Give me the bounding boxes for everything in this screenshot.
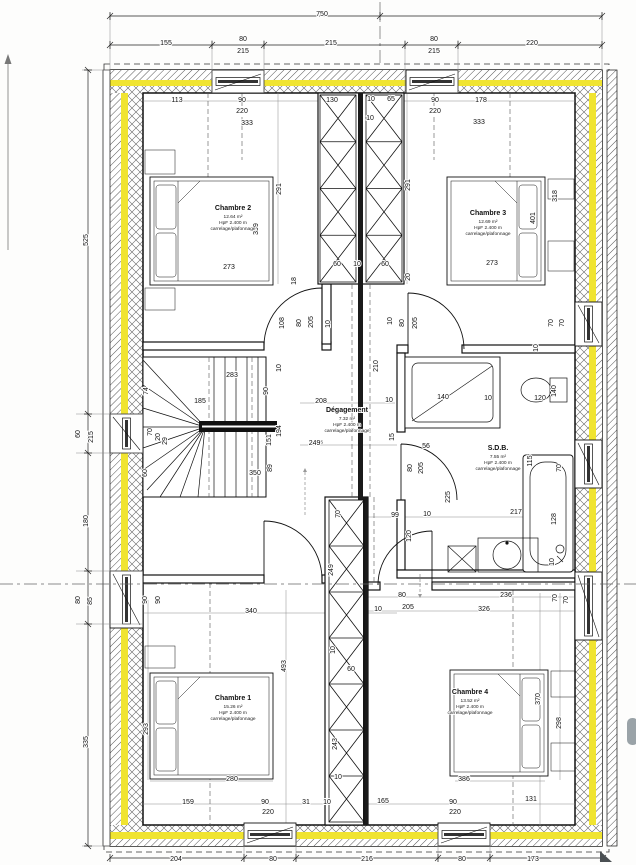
dimension-label: 10 xyxy=(276,364,283,372)
dimension-label: 205 xyxy=(308,316,315,328)
dimension-label: 56 xyxy=(422,443,430,450)
dimension-label: 220 xyxy=(449,809,461,816)
dimension-label: 31 xyxy=(302,799,310,806)
dimension-label: 326 xyxy=(478,606,490,613)
dimension-label: 140 xyxy=(437,394,449,401)
dimension-label: 10 xyxy=(374,606,382,613)
dimension-label: 220 xyxy=(262,809,274,816)
scroll-tab-artifact[interactable] xyxy=(627,718,636,745)
room-finish: carrelage/plafonnage xyxy=(210,226,255,232)
dimension-label: 60 xyxy=(75,430,82,438)
dimension-label: 10 xyxy=(330,646,337,654)
room-name: Chambre 2 xyxy=(215,205,251,212)
room-name: Chambre 4 xyxy=(452,689,488,696)
dimension-label: 60 xyxy=(347,666,355,673)
dimension-label: 80 xyxy=(398,592,406,599)
dimension-label: 90 xyxy=(155,596,162,604)
dimension-label: 210 xyxy=(373,360,380,372)
dimension-label: 80 xyxy=(407,464,414,472)
dimension-label: 131 xyxy=(525,796,537,803)
dimension-label: 273 xyxy=(223,264,235,271)
window xyxy=(110,414,143,453)
dimension-label: 10 xyxy=(385,397,393,404)
room-name: Chambre 3 xyxy=(470,210,506,217)
dimension-label: 128 xyxy=(551,513,558,525)
dimension-label: 18 xyxy=(291,277,298,285)
window xyxy=(575,302,602,346)
dimension-label: 215 xyxy=(237,48,249,55)
dimension-label: 80 xyxy=(239,36,247,43)
room-finish: carrelage/plafonnage xyxy=(210,716,255,722)
dimension-label: 10 xyxy=(367,96,375,103)
dimension-label: 60 xyxy=(381,261,389,268)
dimension-label: 291 xyxy=(405,179,412,191)
dimension-label: 236 xyxy=(500,592,512,599)
dimension-label: 120 xyxy=(406,530,413,542)
dimension-label: 273 xyxy=(486,260,498,267)
room-area: 13.52 m² xyxy=(461,698,480,704)
dimension-label: 293 xyxy=(143,723,150,735)
dimension-label: 10 xyxy=(323,799,331,806)
dimension-label: 70 xyxy=(548,319,555,327)
dimension-label: 185 xyxy=(194,398,206,405)
dimension-label: 10 xyxy=(387,317,394,325)
dimension-label: 155 xyxy=(160,40,172,47)
dimension-label: 333 xyxy=(473,119,485,126)
room-area: 12.64 m² xyxy=(224,214,243,220)
dimension-label: 220 xyxy=(236,108,248,115)
dimension-label: 215 xyxy=(325,40,337,47)
dimension-label: 10 xyxy=(484,395,492,402)
dimension-label: 108 xyxy=(279,317,286,329)
dimension-label: 90 xyxy=(238,97,246,104)
dimension-label: 249 xyxy=(328,564,335,576)
window xyxy=(575,440,602,488)
dimension-label: 10 xyxy=(533,344,540,352)
dimension-label: 350 xyxy=(249,470,261,477)
dimension-label: 205 xyxy=(418,462,425,474)
left-cladding-strip xyxy=(103,70,110,846)
dimension-label: 401 xyxy=(530,212,537,224)
dimension-label: 525 xyxy=(83,234,90,246)
dimension-label: 194 xyxy=(276,425,283,437)
dimension-label: 80 xyxy=(458,856,466,863)
dimension-label: 178 xyxy=(475,97,487,104)
dimension-label: 750 xyxy=(316,11,328,18)
dimension-label: 70 xyxy=(335,510,342,518)
room-finish: carrelage/plafonnage xyxy=(447,710,492,716)
dimension-label: 90 xyxy=(449,799,457,806)
dimension-label: 220 xyxy=(429,108,441,115)
dimension-label: 80 xyxy=(269,856,277,863)
dimension-label: 140 xyxy=(551,385,558,397)
room-name: Dégagement xyxy=(326,407,369,414)
dimension-label: 165 xyxy=(377,798,389,805)
room-name: S.D.B. xyxy=(488,445,509,452)
cursor-artifact xyxy=(600,851,612,862)
room-finish: carrelage/plafonnage xyxy=(324,428,369,434)
dimension-label: 370 xyxy=(535,693,542,705)
dimension-label: 65 xyxy=(387,96,395,103)
right-cladding-strip xyxy=(607,70,617,846)
dimension-label: 10 xyxy=(366,115,374,122)
dimension-label: 217 xyxy=(510,509,522,516)
window xyxy=(406,70,458,93)
dimension-label: 120 xyxy=(534,395,546,402)
room-area: 12.69 m² xyxy=(479,219,498,225)
dimension-label: 318 xyxy=(552,190,559,202)
dimension-label: 216 xyxy=(361,856,373,863)
insulation-yellow-top xyxy=(110,80,602,86)
dimension-label: 205 xyxy=(402,604,414,611)
dimension-label: 70 xyxy=(552,594,559,602)
dimension-label: 335 xyxy=(83,736,90,748)
room-area: 7.55 m² xyxy=(490,454,507,460)
room-height: HpF 2.400 m xyxy=(484,460,512,466)
dimension-label: 386 xyxy=(458,776,470,783)
dimension-label: 10 xyxy=(549,558,556,566)
dimension-label: 10 xyxy=(325,320,332,328)
dimension-label: 70 xyxy=(147,428,154,436)
dimension-label: 220 xyxy=(526,40,538,47)
dimension-label: 10 xyxy=(423,511,431,518)
dimension-label: 283 xyxy=(226,372,238,379)
room-height: HpF 2.400 m xyxy=(474,225,502,231)
dimension-label: 10 xyxy=(334,774,342,781)
window xyxy=(575,572,602,640)
window xyxy=(244,823,296,846)
dimension-label: 90 xyxy=(261,799,269,806)
bathtub xyxy=(523,455,573,572)
dimension-label: 243 xyxy=(332,738,339,750)
dimension-label: 74 xyxy=(143,387,150,395)
axis-arrow xyxy=(5,54,12,64)
dimension-label: 249⁵ xyxy=(309,440,324,447)
dimension-label: 60 xyxy=(333,261,341,268)
window xyxy=(212,70,264,93)
dimension-label: 280 xyxy=(226,776,238,783)
room-finish: carrelage/plafonnage xyxy=(465,231,510,237)
dimension-label: 80 xyxy=(399,319,406,327)
room-height: HpF 2.400 m xyxy=(219,220,247,226)
dimension-label: 60 xyxy=(142,469,149,477)
shower xyxy=(405,357,500,428)
dimension-label: 80 xyxy=(75,596,82,604)
dimension-label: 90 xyxy=(263,387,270,395)
room-area: 15.26 m² xyxy=(224,704,243,710)
room-height: HpF 2.400 m xyxy=(333,422,361,428)
dimension-label: 20 xyxy=(155,433,162,441)
dimension-label: 180 xyxy=(83,515,90,527)
dimension-label: 89 xyxy=(267,464,274,472)
dimension-label: 340 xyxy=(245,608,257,615)
corridor-wall-spine xyxy=(358,284,363,500)
room-height: HpF 2.400 m xyxy=(456,704,484,710)
insulation-yellow-left xyxy=(121,70,128,846)
dimension-label: 70 xyxy=(556,464,563,472)
dimension-label: 204 xyxy=(170,856,182,863)
dimension-label: 291 xyxy=(276,183,283,195)
dimension-label: 113 xyxy=(171,97,182,104)
dimension-label: 151 xyxy=(266,434,273,446)
dimension-label: 115 xyxy=(527,455,534,466)
dimension-label: 99 xyxy=(391,512,399,519)
floor-plan-sheet: 7501558021521580215220525602151808085335… xyxy=(0,0,636,865)
dimension-label: 225 xyxy=(445,491,452,503)
window xyxy=(110,571,143,628)
dimension-label: 20 xyxy=(405,273,412,281)
dimension-label: 208 xyxy=(315,398,327,405)
dimension-label: 15 xyxy=(389,433,396,441)
dimension-label: 159 xyxy=(182,799,194,806)
dimension-label: 130 xyxy=(326,97,338,104)
dimension-label: 493 xyxy=(281,660,288,672)
room-finish: carrelage/plafonnage xyxy=(475,466,520,472)
dimension-label: 10 xyxy=(353,261,361,268)
dimension-label: 70 xyxy=(559,319,566,327)
dimension-label: 215 xyxy=(428,48,440,55)
dimension-label: 70 xyxy=(563,596,570,604)
dimension-label: 85 xyxy=(87,597,94,605)
room-name: Chambre 1 xyxy=(215,695,251,702)
dimension-label: 80 xyxy=(430,36,438,43)
dimension-label: 80 xyxy=(296,319,303,327)
room-height: HpF 2.400 m xyxy=(219,710,247,716)
window xyxy=(438,823,490,846)
room-area: 7.32 m² xyxy=(339,416,356,422)
dimension-label: 90 xyxy=(142,596,149,604)
insulation-yellow-bottom xyxy=(110,832,602,839)
dimension-label: 90 xyxy=(431,97,439,104)
dimension-label: 333 xyxy=(241,120,253,127)
dimension-label: 29 xyxy=(162,437,169,445)
dimension-label: 173 xyxy=(527,856,539,863)
floor-plan-drawing: 7501558021521580215220525602151808085335… xyxy=(0,0,636,865)
dimension-label: 298 xyxy=(556,717,563,729)
dimension-label: 215 xyxy=(88,431,95,443)
dimension-label: 205 xyxy=(412,317,419,329)
